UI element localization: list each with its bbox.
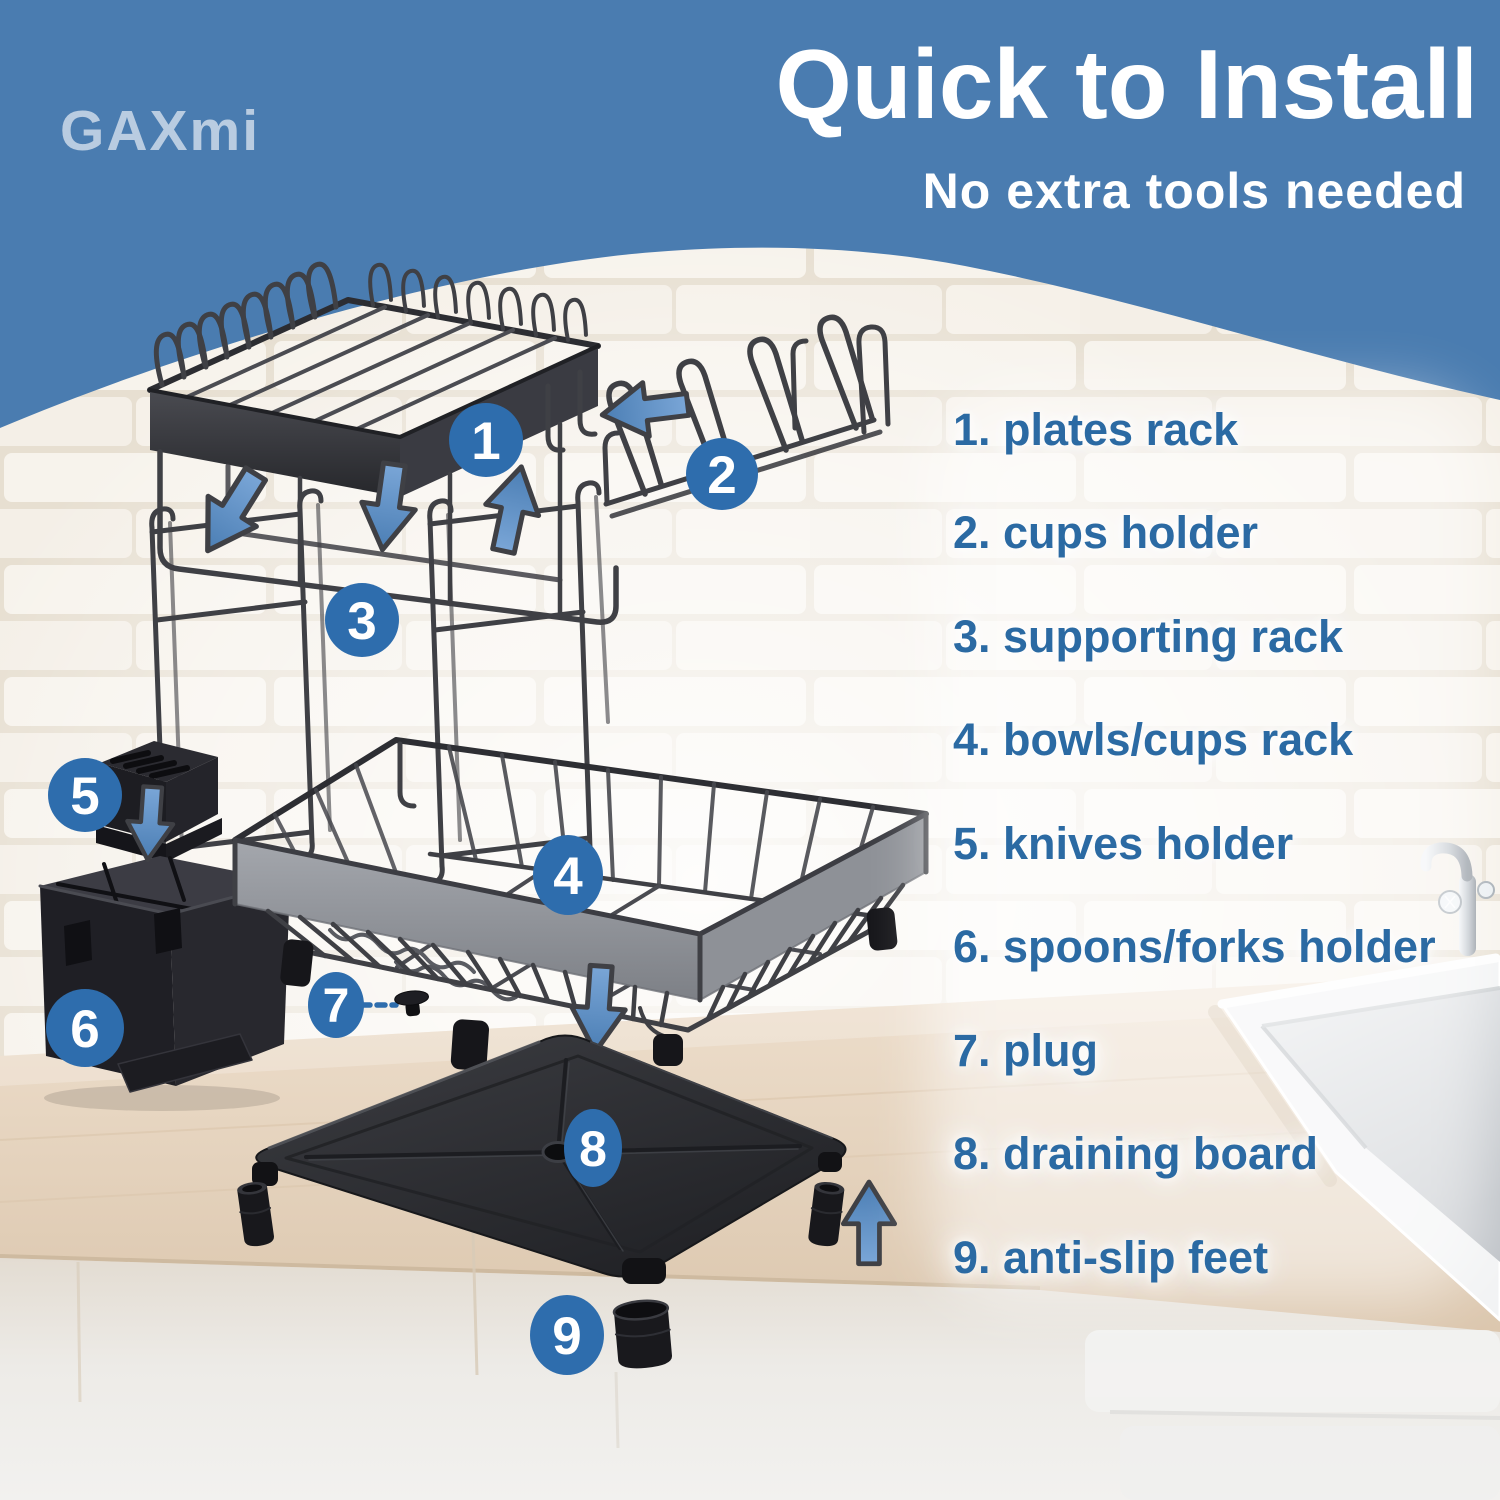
part-badge-6: 6	[46, 989, 124, 1067]
brand-logo: GAXmi	[60, 98, 260, 164]
part-badge-5-number: 5	[70, 767, 99, 826]
part-badge-7-number: 7	[323, 980, 350, 1033]
part-badge-6-number: 6	[70, 1000, 99, 1059]
parts-list: 1. plates rack 2. cups holder 3. support…	[953, 378, 1436, 1310]
part-badge-9-number: 9	[552, 1307, 581, 1366]
part-badge-2: 2	[686, 438, 758, 510]
part-badge-3-number: 3	[347, 592, 376, 651]
list-item-anti-slip-feet: 9. anti-slip feet	[953, 1206, 1436, 1310]
part-badge-1-number: 1	[471, 412, 500, 471]
part-badge-4: 4	[533, 835, 603, 915]
part-badge-3: 3	[325, 583, 399, 657]
list-item-spoons-forks-holder: 6. spoons/forks holder	[953, 896, 1436, 1000]
part-badge-8-number: 8	[579, 1121, 607, 1177]
part-badge-9: 9	[530, 1295, 604, 1375]
list-item-cups-holder: 2. cups holder	[953, 482, 1436, 586]
part-badge-2-number: 2	[707, 446, 736, 505]
product-infographic: 1 2 3 4 5 6 7 8	[0, 0, 1500, 1500]
list-item-supporting-rack: 3. supporting rack	[953, 585, 1436, 689]
part-badge-7: 7	[308, 972, 364, 1038]
part-badge-4-number: 4	[553, 847, 583, 906]
part-badge-5: 5	[48, 758, 122, 832]
part-badge-1: 1	[449, 403, 523, 477]
list-item-knives-holder: 5. knives holder	[953, 792, 1436, 896]
list-item-plug: 7. plug	[953, 999, 1436, 1103]
list-item-draining-board: 8. draining board	[953, 1103, 1436, 1207]
page-title: Quick to Install	[776, 28, 1478, 141]
page-subtitle: No extra tools needed	[923, 162, 1466, 220]
list-item-plates-rack: 1. plates rack	[953, 378, 1436, 482]
anti-slip-foot-large	[613, 1299, 673, 1370]
part-badge-8: 8	[564, 1109, 622, 1187]
list-item-bowls-cups-rack: 4. bowls/cups rack	[953, 689, 1436, 793]
